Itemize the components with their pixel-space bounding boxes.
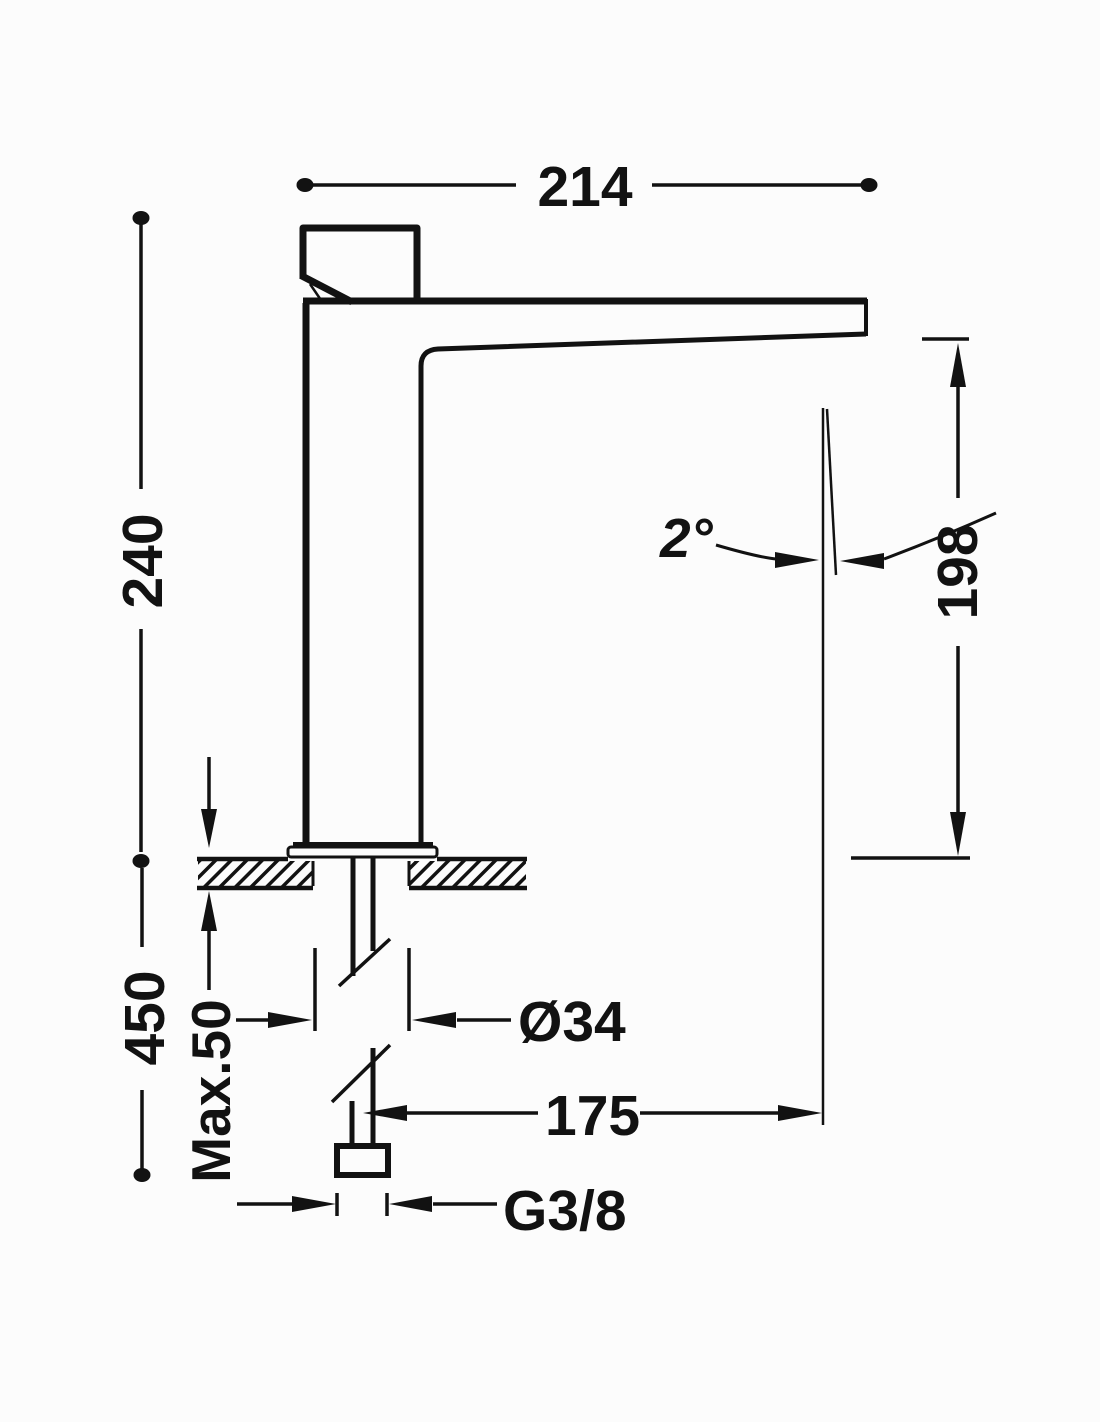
countertop-hatch-left <box>198 861 312 887</box>
connection-thread-label: G3/8 <box>503 1179 627 1243</box>
dimension-supply-extent: 450 <box>113 868 177 1182</box>
extension-ticks <box>337 1193 387 1216</box>
dimension-overall-width: 214 <box>297 155 878 219</box>
outlet-height-label: 198 <box>926 524 990 619</box>
countertop-hole-edges <box>313 861 409 886</box>
pipe-break-slash-upper <box>339 939 390 986</box>
supply-extent-label: 450 <box>113 970 177 1065</box>
body-base-bar <box>293 842 433 848</box>
overall-width-label: 214 <box>537 155 632 219</box>
technical-drawing-page: 214 240 450 Max.50 Ø34 175 <box>0 0 1100 1422</box>
arrowhead-right-icon <box>268 1012 312 1028</box>
countertop-hatch-right <box>409 861 526 887</box>
arrowhead-left-icon <box>389 1196 432 1212</box>
mounting-flange <box>288 847 437 857</box>
arrowhead-right-icon <box>292 1196 336 1212</box>
extension-lines <box>315 948 409 1031</box>
leader-line-left <box>716 545 776 559</box>
arrowhead-up-icon <box>950 343 966 387</box>
arrowhead-down-icon <box>950 812 966 856</box>
outlet-angle-label: 2° <box>659 507 714 569</box>
pipe-break-slash-lower <box>332 1045 390 1102</box>
supply-pipe <box>332 857 390 1175</box>
dim-dot <box>133 211 150 225</box>
dimension-hole-diameter: Ø34 <box>236 948 626 1054</box>
arrowhead-left-icon <box>840 553 884 569</box>
max-deck-thickness-label: Max.50 <box>180 999 242 1182</box>
overall-height-label: 240 <box>111 513 175 608</box>
faucet-body <box>288 228 867 857</box>
dimension-outlet-height: 198 <box>851 339 990 858</box>
dimension-connection-thread: G3/8 <box>237 1179 627 1243</box>
arrowhead-left-icon <box>412 1012 456 1028</box>
arrowhead-down-icon <box>201 809 217 848</box>
dimension-overall-height: 240 <box>111 211 175 868</box>
dim-dot <box>134 1168 151 1182</box>
spout-reach-label: 175 <box>545 1084 640 1148</box>
arrowhead-left-icon <box>363 1105 407 1121</box>
dim-dot <box>133 854 150 868</box>
tilted-axis-line <box>827 409 836 575</box>
arrowhead-right-icon <box>778 1105 822 1121</box>
hole-diameter-label: Ø34 <box>518 990 626 1054</box>
dimension-spout-reach: 175 <box>363 1084 822 1148</box>
g38-connector-block <box>337 1146 388 1175</box>
arrowhead-up-icon <box>201 891 217 931</box>
dimension-max-deck-thickness: Max.50 <box>180 757 242 1183</box>
faucet-dimension-drawing: 214 240 450 Max.50 Ø34 175 <box>0 0 1100 1422</box>
arrowhead-right-icon <box>775 552 819 568</box>
angle-annotation: 2° <box>659 408 996 1125</box>
countertop-section <box>197 859 527 888</box>
spout-underside-and-column-right <box>421 334 866 843</box>
